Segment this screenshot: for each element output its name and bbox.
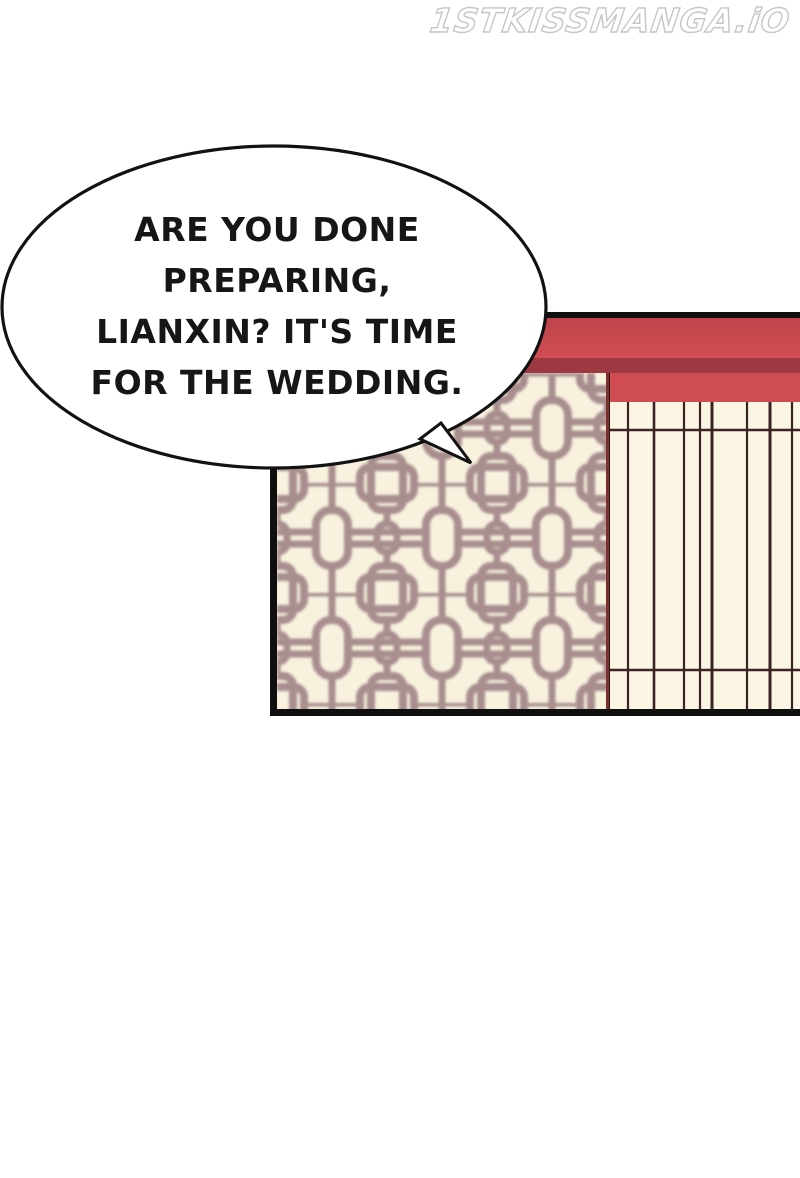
bubble-text-line-4: FOR THE WEDDING.	[17, 357, 537, 408]
speech-bubble-text: ARE YOU DONE PREPARING, LIANXIN? IT'S TI…	[17, 204, 537, 408]
bubble-text-line-3: LIANXIN? IT'S TIME	[17, 306, 537, 357]
right-wall	[606, 373, 800, 709]
bubble-text-line-2: PREPARING,	[17, 255, 537, 306]
slat-screen	[606, 402, 800, 709]
site-watermark: 1STKISSMANGA.iO	[422, 1, 792, 40]
slat-lines	[606, 402, 800, 709]
red-wall-band	[606, 373, 800, 404]
bubble-text-line-1: ARE YOU DONE	[17, 204, 537, 255]
screen-left-edge	[606, 373, 610, 709]
